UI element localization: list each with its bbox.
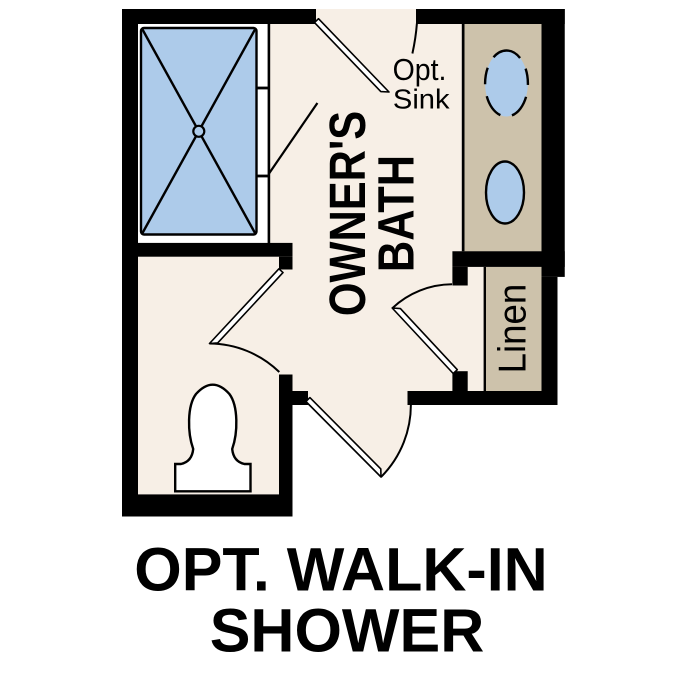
svg-text:SHOWER: SHOWER	[210, 597, 485, 665]
svg-text:Opt.: Opt.	[393, 53, 447, 87]
svg-text:Sink: Sink	[393, 84, 451, 115]
svg-text:BATH: BATH	[368, 155, 425, 272]
svg-text:Linen: Linen	[491, 284, 534, 374]
svg-text:OPT. WALK-IN: OPT. WALK-IN	[134, 536, 547, 604]
